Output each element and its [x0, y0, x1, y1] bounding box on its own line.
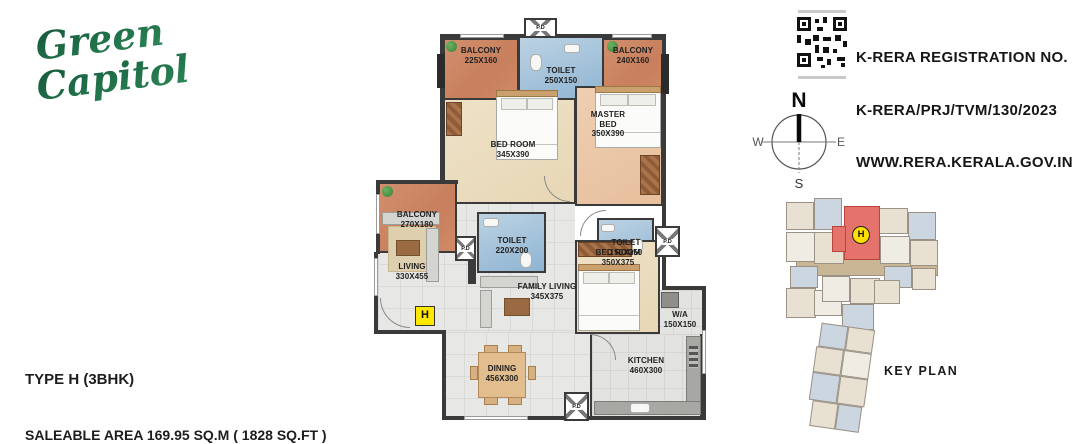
keyplan-unit: [880, 236, 910, 264]
room-dim: 350X375: [578, 258, 658, 268]
keyplan-unit: [835, 404, 862, 433]
keyplan-lower-block: [805, 322, 879, 435]
qr-caption-top: [798, 10, 846, 13]
keyplan-unit: [813, 346, 844, 376]
keyplan-unit-h-highlight: [832, 226, 846, 252]
pillow-icon: [501, 98, 527, 110]
pd-label: P.D: [535, 25, 545, 31]
wall-balcony-top: [376, 180, 458, 184]
chair-icon: [484, 397, 498, 405]
keyplan-unit: [878, 208, 908, 234]
window-balcony-tr: [612, 34, 652, 38]
compass-south-label: S: [795, 176, 804, 191]
pd-label: P.D: [571, 404, 581, 410]
keyplan-unit: [786, 202, 814, 230]
room-name: MASTER BED: [582, 110, 634, 129]
label-bedroom-1: BED ROOM345X390: [473, 140, 553, 159]
label-toilet-2: TOILET220X200: [480, 236, 544, 255]
brand-logo: Green Capitol: [12, 0, 192, 115]
floorplan-page: Green Capitol K-RERA REGISTRATION NO. K-…: [0, 0, 1078, 444]
label-bedroom-3: BED ROOM350X375: [578, 248, 658, 267]
master-door-arc-icon: [580, 210, 606, 236]
plant-icon: [382, 186, 393, 197]
keyplan-unit: [818, 323, 848, 351]
room-dim: 270X180: [383, 220, 451, 230]
pipe-duct-bottom: P.D: [564, 392, 589, 421]
wall-step-bottom: [374, 330, 446, 334]
keyplan-unit: [837, 376, 869, 408]
pillow-icon: [628, 94, 656, 106]
room-name: BED ROOM: [578, 248, 658, 258]
entrance-unit-marker: H: [415, 306, 435, 326]
room-dim: 460X300: [596, 366, 696, 376]
room-dim: 220X200: [480, 246, 544, 256]
room-name: TOILET: [480, 236, 544, 246]
label-master-bed: MASTER BED350X390: [582, 110, 634, 139]
room-name: LIVING: [382, 262, 442, 272]
room-dim: 345X375: [492, 292, 602, 302]
pipe-duct-top: P.D: [524, 18, 557, 38]
label-living: LIVING330X455: [382, 262, 442, 281]
room-dim: 240X160: [603, 56, 663, 66]
label-toilet-top: TOILET250X150: [522, 66, 600, 85]
room-dim: 150X150: [658, 320, 702, 330]
window-balcony-tl: [460, 34, 504, 38]
wall-step-right: [442, 330, 446, 420]
pillar-left: [437, 54, 445, 88]
room-dim: 225X160: [445, 56, 517, 66]
sofa-icon: [480, 290, 492, 328]
unit-type: TYPE H (3BHK): [25, 370, 327, 390]
wall-workarea-top: [662, 286, 706, 290]
qr-caption-bottom: [798, 76, 846, 79]
keyplan-unit: [910, 240, 938, 266]
room-name: BED ROOM: [473, 140, 553, 150]
chair-icon: [470, 366, 478, 380]
headboard-icon: [496, 90, 558, 97]
wardrobe-icon: [446, 102, 462, 136]
label-balcony-tl: BALCONY225X160: [445, 46, 517, 65]
qr-code-icon: [795, 15, 849, 69]
washbasin-icon: [483, 218, 499, 227]
label-kitchen: KITCHEN460X300: [596, 356, 696, 375]
window-balcony-ml: [376, 194, 380, 234]
washbasin-icon: [564, 44, 580, 53]
sink-icon: [630, 403, 650, 413]
key-plan: H KEY PLAN: [786, 192, 976, 440]
room-name: KITCHEN: [596, 356, 696, 366]
wall-stub-living: [468, 260, 476, 284]
pd-label: P.D: [460, 246, 470, 252]
wardrobe-icon: [640, 155, 660, 195]
room-name: DINING: [478, 364, 526, 374]
keyplan-title: KEY PLAN: [884, 364, 958, 378]
qr-code-block: [795, 8, 849, 81]
rera-line2: K-RERA/PRJ/TVM/130/2023: [856, 102, 1073, 120]
headboard-icon: [595, 86, 661, 93]
washing-machine-icon: [661, 292, 679, 308]
window-dining: [464, 416, 528, 420]
label-work-area: W/A150X150: [658, 310, 702, 329]
room-dim: 330X455: [382, 272, 442, 282]
compass-east-label: E: [837, 135, 845, 149]
keyplan-unit: [809, 400, 838, 429]
window-kitchen: [702, 330, 706, 374]
pillow-icon: [600, 94, 628, 106]
pd-label: P.D: [662, 239, 672, 245]
pillow-icon: [609, 272, 635, 284]
room-name: FAMILY LIVING: [492, 282, 602, 292]
room-dim: 456X300: [478, 374, 526, 384]
room-name: BALCONY: [383, 210, 451, 220]
compass-icon: N W E S: [752, 85, 847, 200]
keyplan-unit: [908, 212, 936, 240]
room-name: BALCONY: [603, 46, 663, 56]
blanket-fold: [579, 315, 639, 316]
label-family-living: FAMILY LIVING345X375: [492, 282, 602, 301]
keyplan-unit: [786, 288, 816, 318]
keyplan-unit: [822, 276, 850, 302]
room-name: TOILET: [522, 66, 600, 76]
compass-west-label: W: [752, 135, 764, 149]
label-dining: DINING456X300: [478, 364, 526, 383]
unit-info-block: TYPE H (3BHK) SALEABLE AREA 169.95 SQ.M …: [25, 334, 327, 444]
label-balcony-ml: BALCONY270X180: [383, 210, 451, 229]
keyplan-unit: [874, 280, 900, 304]
chair-icon: [508, 397, 522, 405]
keyplan-unit: [845, 326, 875, 354]
pillow-icon: [527, 98, 553, 110]
room-dim: 350X390: [582, 129, 634, 139]
rera-line3: WWW.RERA.KERALA.GOV.IN: [856, 154, 1073, 172]
keyplan-unit: [786, 232, 816, 262]
room-dim: 345X390: [473, 150, 553, 160]
chair-icon: [528, 366, 536, 380]
keyplan-unit: [912, 268, 936, 290]
pipe-duct-left: P.D: [455, 236, 476, 261]
unit-saleable-area: SALEABLE AREA 169.95 SQ.M ( 1828 SQ.FT ): [25, 426, 327, 444]
keyplan-unit: [840, 350, 871, 380]
coffee-table-icon: [396, 240, 420, 256]
rera-registration-block: K-RERA REGISTRATION NO. K-RERA/PRJ/TVM/1…: [856, 14, 1073, 207]
rera-line1: K-RERA REGISTRATION NO.: [856, 49, 1073, 67]
keyplan-unit-marker: H: [852, 226, 870, 244]
label-balcony-tr: BALCONY240X160: [603, 46, 663, 65]
keyplan-unit: [790, 266, 818, 288]
keyplan-unit: [809, 372, 841, 404]
room-name: TOILET: [598, 238, 654, 248]
window-living: [374, 258, 378, 296]
room-name: W/A: [658, 310, 702, 320]
room-dim: 250X150: [522, 76, 600, 86]
compass-north-label: N: [791, 89, 806, 112]
floor-plan: P.D P.D P.D P.D: [368, 14, 713, 428]
room-name: BALCONY: [445, 46, 517, 56]
pipe-duct-right: P.D: [655, 226, 680, 257]
